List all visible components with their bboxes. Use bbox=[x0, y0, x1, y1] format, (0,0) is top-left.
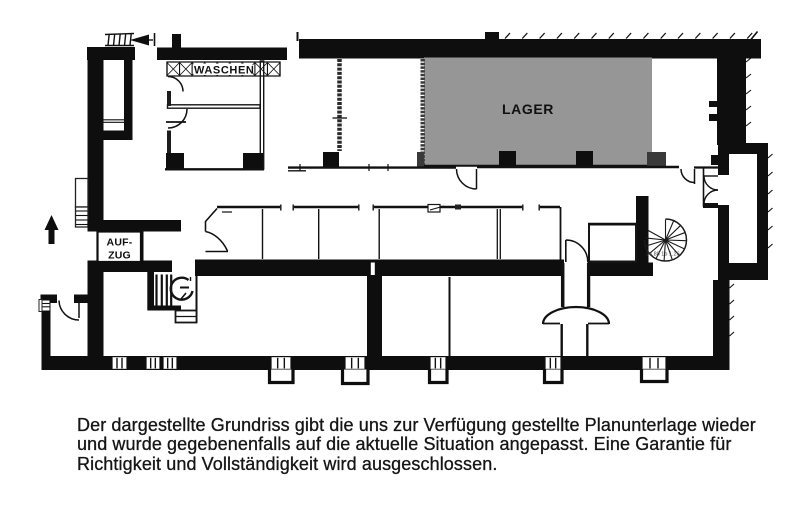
svg-text:ZUG: ZUG bbox=[108, 250, 131, 262]
svg-text:WASCHEN: WASCHEN bbox=[194, 65, 254, 77]
svg-text:LAGER: LAGER bbox=[502, 101, 554, 117]
svg-text:AUF-: AUF- bbox=[107, 237, 133, 249]
svg-text:34.80 1b 1.26: 34.80 1b 1.26 bbox=[646, 252, 680, 258]
